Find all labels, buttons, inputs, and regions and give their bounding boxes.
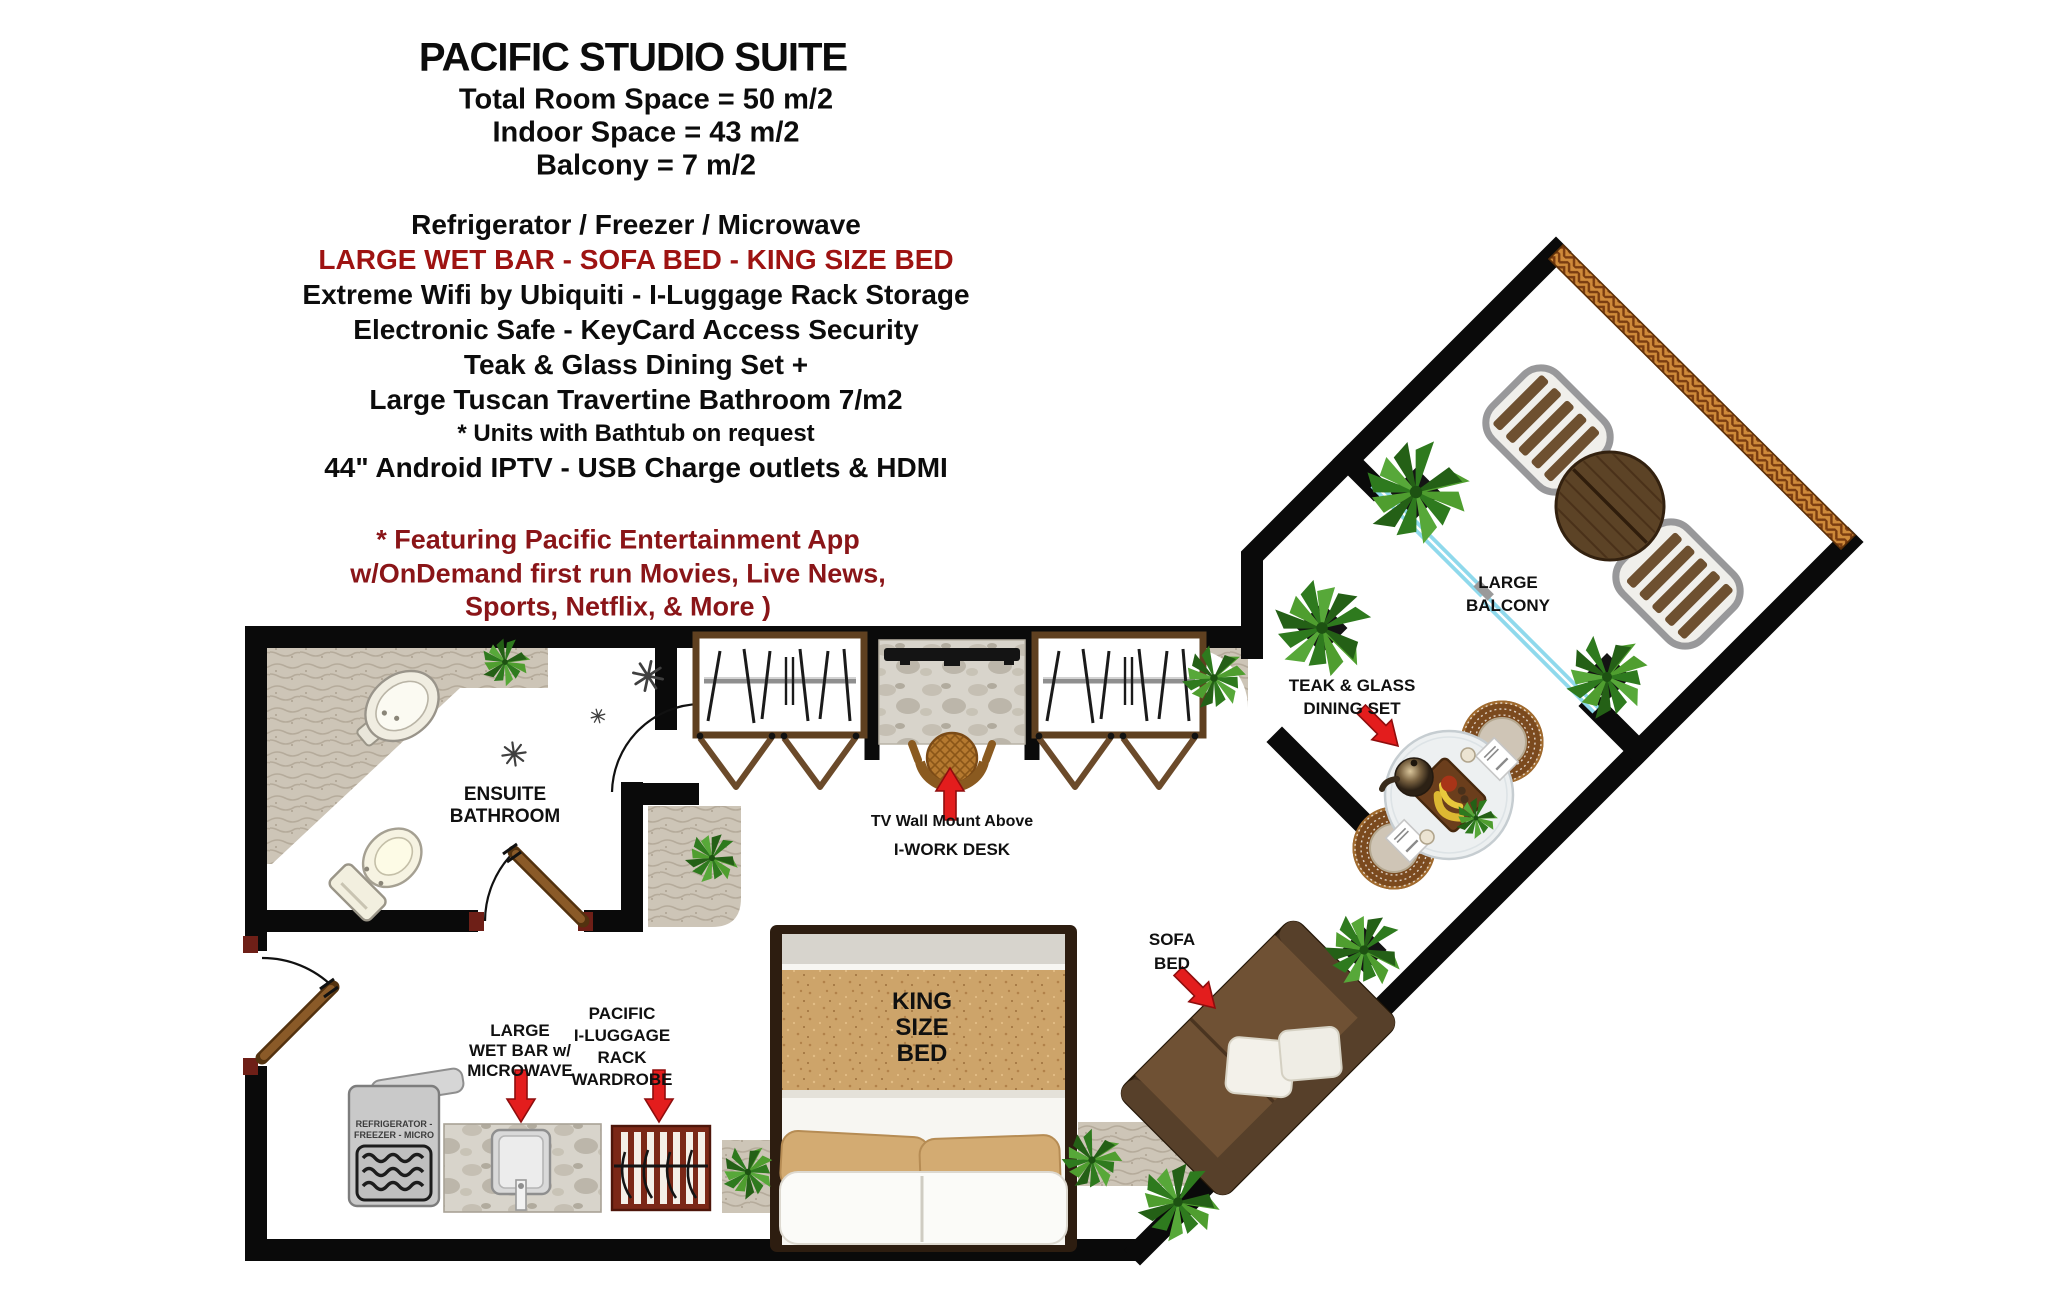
label-dining-set: TEAK & GLASS DINING SET xyxy=(1289,674,1416,720)
label-work-desk: I-WORK DESK xyxy=(894,840,1010,860)
label-line: RACK xyxy=(597,1048,646,1067)
closet-right xyxy=(1035,635,1203,787)
label-fridge: REFRIGERATOR - FREEZER - MICRO xyxy=(354,1119,434,1141)
feature-line: Extreme Wifi by Ubiquiti - I-Luggage Rac… xyxy=(302,279,969,311)
king-bed xyxy=(770,925,1077,1252)
label-line: LARGE xyxy=(1478,573,1538,592)
page-title: PACIFIC STUDIO SUITE xyxy=(419,36,847,81)
closet-left xyxy=(696,635,864,787)
spec-total-space: Total Room Space = 50 m/2 xyxy=(459,84,833,117)
label-line: FREEZER - MICRO xyxy=(354,1130,434,1140)
label-ensuite-bathroom: ENSUITE BATHROOM xyxy=(450,784,560,828)
label-line: MICROWAVE xyxy=(467,1061,572,1080)
label-line: BATHROOM xyxy=(450,806,560,827)
feature-line-highlight: LARGE WET BAR - SOFA BED - KING SIZE BED xyxy=(318,244,953,276)
label-line: KING xyxy=(892,988,952,1015)
floorplan-page: PACIFIC STUDIO SUITE Total Room Space = … xyxy=(0,0,2048,1294)
floorplan-drawing xyxy=(0,0,2048,1294)
promo-line: w/OnDemand first run Movies, Live News, xyxy=(350,559,886,590)
label-line: PACIFIC xyxy=(589,1004,656,1023)
label-line: WARDROBE xyxy=(571,1070,672,1089)
plant-icon xyxy=(1259,564,1386,691)
door-swing-icon xyxy=(612,704,700,792)
label-line: BED xyxy=(897,1040,948,1067)
label-line: BALCONY xyxy=(1466,596,1550,615)
label-sofa-bed: SOFA BED xyxy=(1149,928,1195,976)
toilet xyxy=(327,815,434,922)
wet-bar xyxy=(444,1124,601,1212)
promo-line: Sports, Netflix, & More ) xyxy=(465,592,771,623)
feature-line: 44" Android IPTV - USB Charge outlets & … xyxy=(324,452,948,484)
feature-line: Teak & Glass Dining Set + xyxy=(464,349,808,381)
label-line: REFRIGERATOR - xyxy=(356,1119,433,1129)
label-luggage-rack: PACIFIC I-LUGGAGE RACK WARDROBE xyxy=(571,1003,672,1091)
wall-dining-partition xyxy=(1282,742,1366,826)
feature-line: Refrigerator / Freezer / Microwave xyxy=(411,209,861,241)
wall-slider-stub-west xyxy=(1348,460,1374,486)
label-line: SIZE xyxy=(895,1014,948,1041)
feature-line-note: * Units with Bathtub on request xyxy=(457,420,814,448)
label-line: DINING SET xyxy=(1303,699,1400,718)
bathroom-door xyxy=(485,844,583,921)
label-line: SOFA xyxy=(1149,930,1195,949)
label-line: ENSUITE xyxy=(464,784,546,805)
label-wet-bar: LARGE WET BAR w/ MICROWAVE xyxy=(467,1021,572,1081)
promo-line: * Featuring Pacific Entertainment App xyxy=(376,525,860,556)
label-line: TEAK & GLASS xyxy=(1289,676,1416,695)
spec-balcony-space: Balcony = 7 m/2 xyxy=(536,150,756,183)
label-line: BED xyxy=(1154,954,1190,973)
label-king-size-bed: KING SIZE BED xyxy=(892,989,952,1067)
label-tv-wall-mount: TV Wall Mount Above xyxy=(871,813,1033,831)
label-line: LARGE xyxy=(490,1021,550,1040)
feature-line: Large Tuscan Travertine Bathroom 7/m2 xyxy=(369,384,902,416)
label-line: WET BAR w/ xyxy=(469,1041,571,1060)
feature-line: Electronic Safe - KeyCard Access Securit… xyxy=(353,314,918,346)
label-large-balcony: LARGE BALCONY xyxy=(1466,571,1550,617)
entry-door xyxy=(262,958,338,1058)
spec-indoor-space: Indoor Space = 43 m/2 xyxy=(492,117,799,150)
label-line: I-LUGGAGE xyxy=(574,1026,670,1045)
luggage-rack xyxy=(612,1126,710,1210)
